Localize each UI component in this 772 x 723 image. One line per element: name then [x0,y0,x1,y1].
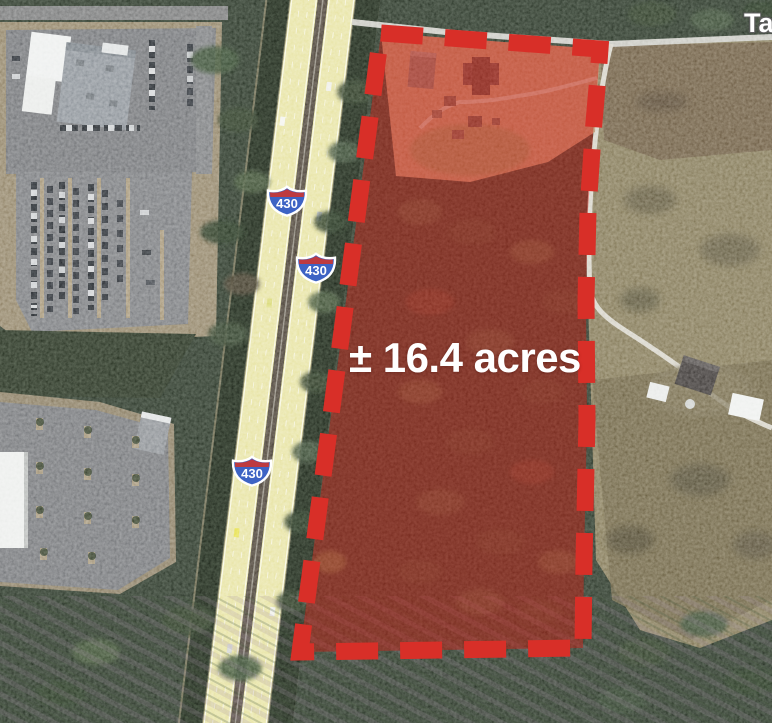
shield-route-number: 430 [241,466,263,481]
satellite-map-canvas[interactable]: 430 430 430 ± 16.4 acres Ta [0,0,772,723]
acreage-label: ± 16.4 acres [349,334,609,382]
road-name-label-partial: Ta [744,8,772,39]
shield-route-number: 430 [305,263,327,278]
shield-route-number: 430 [276,196,298,211]
